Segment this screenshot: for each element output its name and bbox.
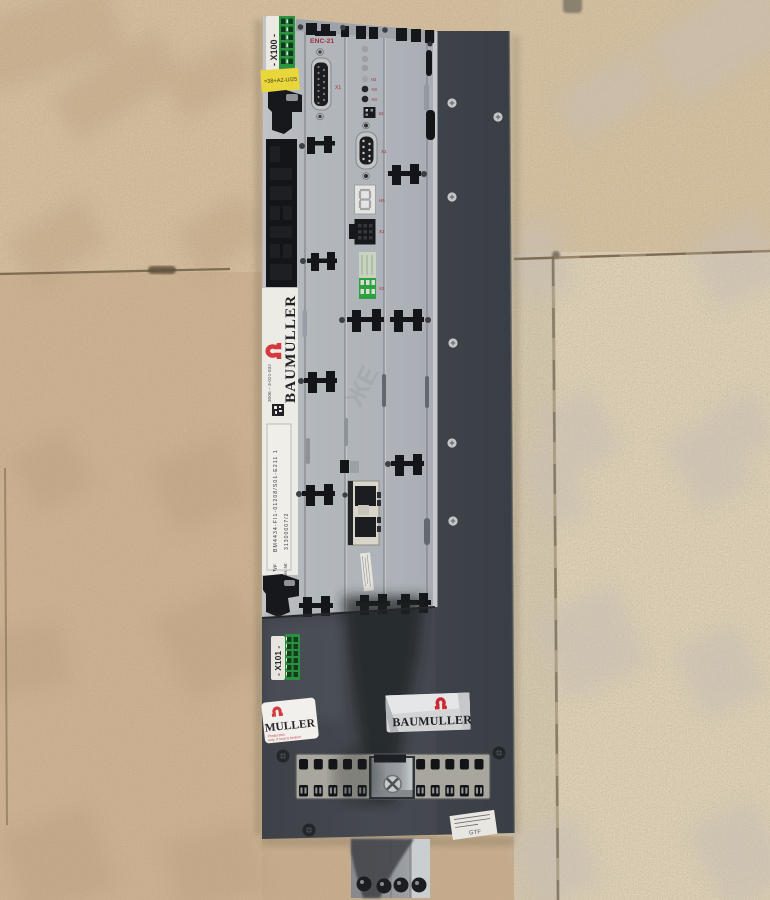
svg-text:H5: H5 bbox=[379, 198, 385, 203]
svg-text:GTF: GTF bbox=[469, 829, 482, 836]
svg-text:X1: X1 bbox=[381, 149, 387, 154]
svg-text:3006 – 3-021-032: 3006 – 3-021-032 bbox=[267, 364, 273, 402]
svg-text:H4: H4 bbox=[372, 97, 378, 102]
svg-text:H2: H2 bbox=[371, 77, 377, 82]
svg-text:- X101 -: - X101 - bbox=[273, 646, 283, 676]
svg-text:H3: H3 bbox=[372, 87, 378, 92]
svg-text:BAUMULLER: BAUMULLER bbox=[283, 295, 299, 403]
svg-text:- X100 -: - X100 - bbox=[269, 34, 279, 66]
svg-text:S4: S4 bbox=[379, 111, 385, 116]
svg-text:Typ:: Typ: bbox=[272, 563, 277, 572]
svg-text:BAUMULLER: BAUMULLER bbox=[392, 712, 472, 729]
svg-text:X2: X2 bbox=[379, 229, 385, 234]
svg-text:X1: X1 bbox=[335, 85, 341, 91]
svg-text:BM4434-FI1-01208/S01-E211 1: BM4434-FI1-01208/S01-E211 1 bbox=[273, 449, 279, 552]
svg-text:31300007/2: 31300007/2 bbox=[284, 513, 290, 550]
svg-text:X3: X3 bbox=[379, 286, 385, 291]
svg-text:ENC-21: ENC-21 bbox=[310, 38, 334, 45]
